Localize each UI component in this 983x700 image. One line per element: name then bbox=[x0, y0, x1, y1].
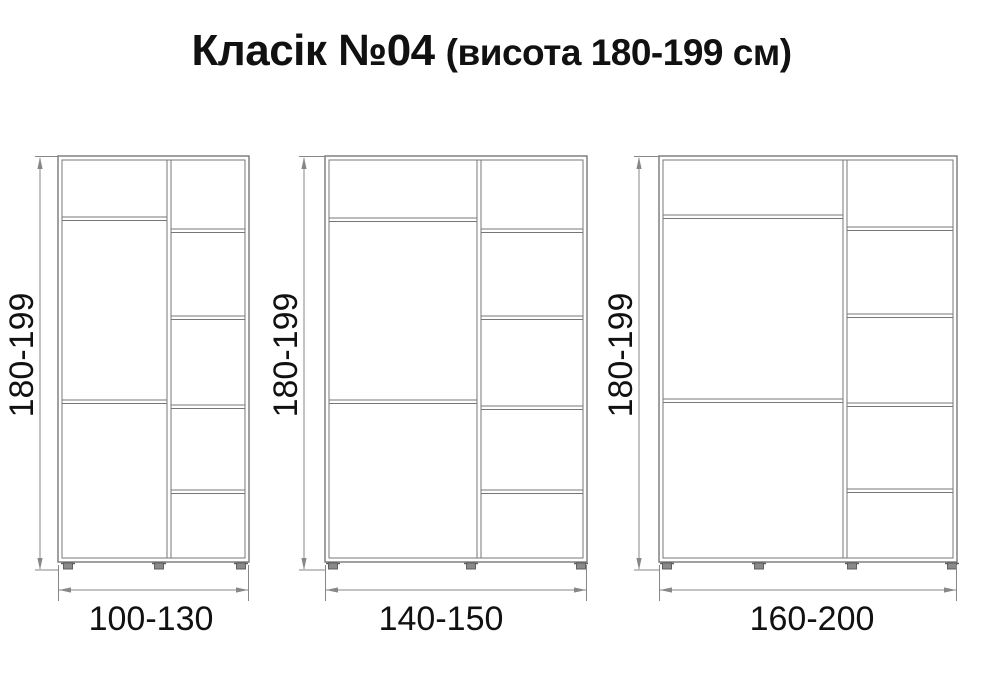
foot-body bbox=[755, 563, 764, 569]
foot bbox=[660, 563, 674, 569]
foot bbox=[845, 563, 859, 569]
width-arrow-left bbox=[660, 587, 672, 592]
foot-body bbox=[663, 563, 672, 569]
foot-body bbox=[155, 563, 164, 569]
width-dimension-label: 140-150 bbox=[379, 600, 504, 638]
wardrobe-diagram: 180-199100-130180-199140-150180-199160-2… bbox=[0, 0, 983, 700]
foot-body bbox=[467, 563, 476, 569]
wardrobe-3: 180-199160-200 bbox=[602, 156, 959, 638]
foot-body bbox=[848, 563, 857, 569]
height-dimension: 180-199 bbox=[602, 157, 659, 571]
height-dimension: 180-199 bbox=[3, 157, 58, 571]
carcass-outline bbox=[659, 156, 957, 562]
foot bbox=[464, 563, 478, 569]
width-dimension: 100-130 bbox=[59, 565, 249, 638]
height-arrow-up bbox=[301, 157, 306, 169]
width-arrow-left bbox=[326, 587, 338, 592]
foot bbox=[152, 563, 166, 569]
width-dimension: 160-200 bbox=[660, 565, 957, 638]
height-arrow-down bbox=[636, 558, 641, 570]
height-arrow-up bbox=[37, 157, 42, 169]
height-arrow-down bbox=[301, 558, 306, 570]
height-arrow-up bbox=[636, 157, 641, 169]
foot bbox=[326, 563, 340, 569]
carcass-outline bbox=[325, 156, 587, 562]
foot bbox=[574, 563, 588, 569]
width-dimension-label: 100-130 bbox=[89, 600, 214, 638]
wardrobe-2: 180-199140-150 bbox=[267, 156, 588, 638]
height-dimension-label: 180-199 bbox=[267, 293, 305, 418]
width-dimension-label: 160-200 bbox=[750, 600, 875, 638]
width-arrow-right bbox=[944, 587, 956, 592]
foot-body bbox=[237, 563, 246, 569]
width-arrow-right bbox=[236, 587, 248, 592]
foot-body bbox=[329, 563, 338, 569]
page: Класік №04 (висота 180-199 см) 180-19910… bbox=[0, 0, 983, 700]
foot bbox=[752, 563, 766, 569]
wardrobe-1: 180-199100-130 bbox=[3, 156, 249, 638]
height-arrow-down bbox=[37, 558, 42, 570]
foot bbox=[234, 563, 248, 569]
foot-body bbox=[577, 563, 586, 569]
height-dimension: 180-199 bbox=[267, 157, 325, 571]
width-dimension: 140-150 bbox=[326, 565, 587, 638]
foot-body bbox=[948, 563, 957, 569]
foot-body bbox=[64, 563, 73, 569]
width-arrow-right bbox=[574, 587, 586, 592]
foot bbox=[61, 563, 75, 569]
width-arrow-left bbox=[59, 587, 71, 592]
height-dimension-label: 180-199 bbox=[3, 293, 41, 418]
height-dimension-label: 180-199 bbox=[602, 293, 640, 418]
